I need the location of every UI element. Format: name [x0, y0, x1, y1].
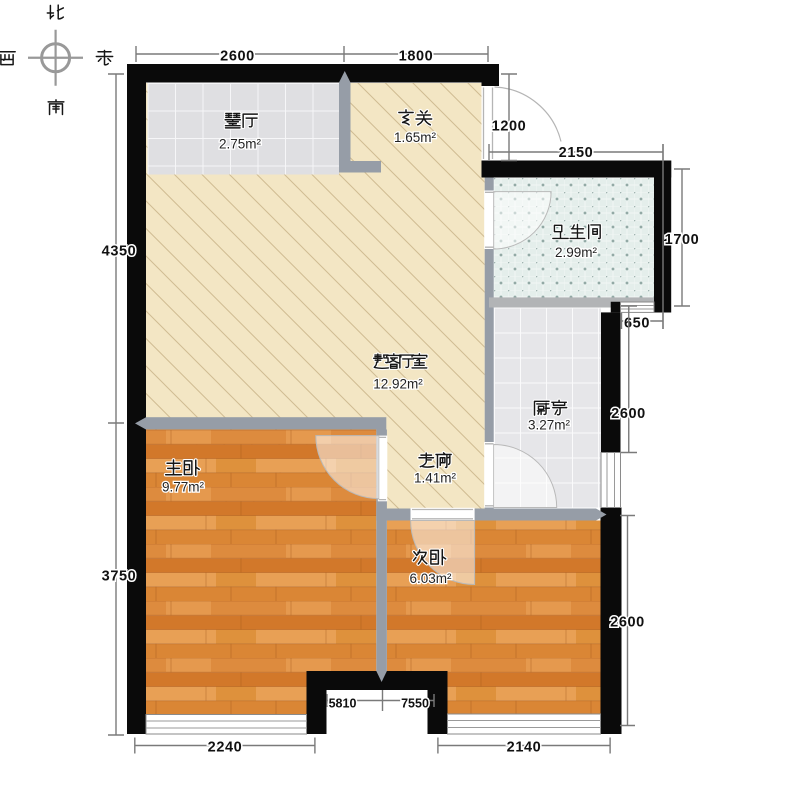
- svg-text:9.77m²: 9.77m²: [162, 480, 205, 495]
- svg-text:2240: 2240: [208, 740, 243, 756]
- svg-text:12.92m²: 12.92m²: [373, 377, 423, 392]
- svg-text:7550: 7550: [401, 697, 429, 711]
- svg-text:650: 650: [624, 316, 650, 332]
- svg-text:3.27m²: 3.27m²: [528, 418, 571, 433]
- svg-text:4350: 4350: [102, 244, 137, 260]
- svg-text:1800: 1800: [399, 49, 434, 65]
- svg-text:2600: 2600: [610, 615, 645, 631]
- svg-text:6.03m²: 6.03m²: [409, 571, 452, 586]
- svg-text:1700: 1700: [665, 232, 700, 248]
- svg-text:2.75m²: 2.75m²: [219, 137, 262, 152]
- svg-text:1200: 1200: [492, 119, 527, 135]
- svg-text:2600: 2600: [611, 406, 646, 422]
- svg-text:1.65m²: 1.65m²: [394, 130, 437, 145]
- svg-text:2600: 2600: [220, 49, 255, 65]
- svg-text:2140: 2140: [507, 740, 542, 756]
- svg-text:3750: 3750: [102, 569, 137, 585]
- svg-text:2150: 2150: [559, 145, 594, 161]
- svg-text:2.99m²: 2.99m²: [555, 245, 598, 260]
- svg-text:5810: 5810: [329, 697, 357, 711]
- svg-text:1.41m²: 1.41m²: [414, 471, 457, 486]
